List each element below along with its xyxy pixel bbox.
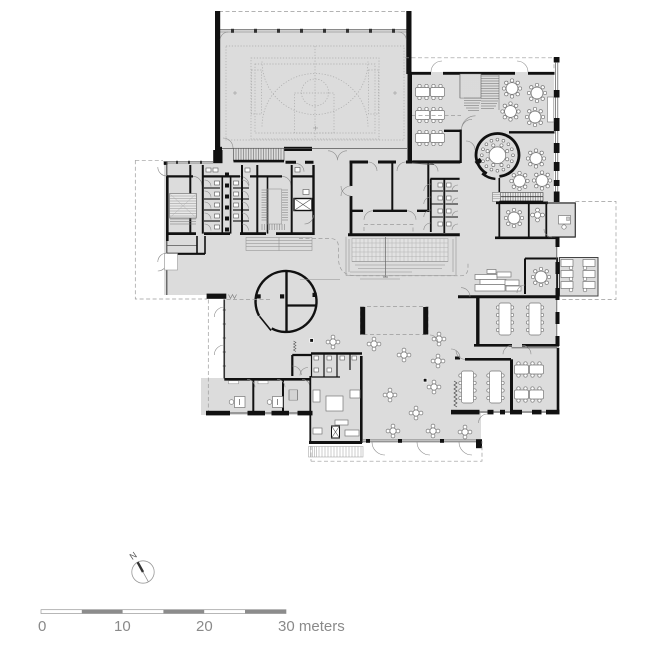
svg-text:30 meters: 30 meters — [278, 618, 345, 635]
svg-text:10: 10 — [114, 618, 131, 635]
svg-text:0: 0 — [38, 618, 46, 635]
svg-text:20: 20 — [196, 618, 213, 635]
